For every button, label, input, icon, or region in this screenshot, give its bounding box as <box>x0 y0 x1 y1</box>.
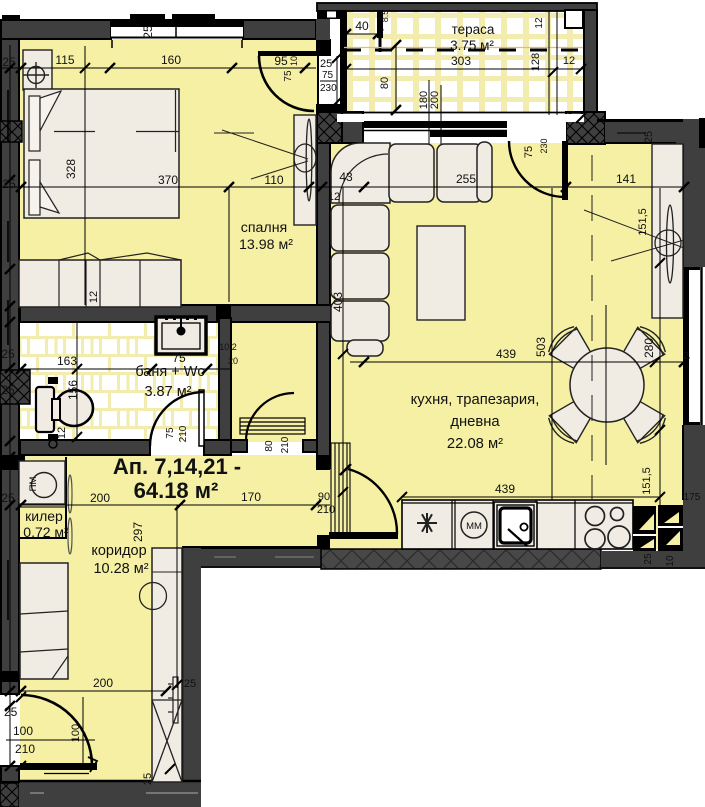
svg-text:110: 110 <box>264 173 283 187</box>
svg-text:503: 503 <box>534 337 548 357</box>
svg-text:175: 175 <box>684 492 701 503</box>
svg-text:3.75 м²: 3.75 м² <box>450 38 494 53</box>
svg-text:10,2: 10,2 <box>219 342 237 352</box>
svg-text:439: 439 <box>496 347 516 361</box>
svg-text:25: 25 <box>643 131 655 143</box>
svg-text:151,5: 151,5 <box>641 467 653 495</box>
svg-text:403: 403 <box>331 292 345 312</box>
svg-text:151,5: 151,5 <box>637 208 649 236</box>
svg-text:280: 280 <box>642 338 656 358</box>
svg-text:коридор: коридор <box>91 543 146 559</box>
svg-text:10: 10 <box>289 56 299 66</box>
svg-text:210: 210 <box>317 504 335 516</box>
svg-text:спалня: спалня <box>241 220 287 236</box>
svg-text:2: 2 <box>683 351 689 362</box>
svg-text:25: 25 <box>2 177 16 191</box>
svg-text:килер: килер <box>25 508 63 524</box>
svg-text:25: 25 <box>320 58 332 70</box>
svg-text:25: 25 <box>1 347 15 361</box>
svg-text:210: 210 <box>280 436 291 453</box>
svg-text:25: 25 <box>2 55 16 69</box>
svg-text:75: 75 <box>322 70 334 81</box>
svg-text:12: 12 <box>328 191 340 203</box>
svg-text:MM: MM <box>466 521 482 532</box>
svg-text:75: 75 <box>283 70 294 82</box>
svg-text:328: 328 <box>64 159 78 179</box>
svg-text:200: 200 <box>429 91 441 109</box>
svg-text:13.98 м²: 13.98 м² <box>239 237 293 253</box>
svg-text:163: 163 <box>57 354 77 368</box>
svg-text:12: 12 <box>56 427 68 439</box>
svg-text:20: 20 <box>228 356 238 366</box>
svg-text:12: 12 <box>563 55 575 67</box>
svg-text:160: 160 <box>161 53 181 67</box>
svg-text:тераса: тераса <box>452 22 495 37</box>
svg-text:25: 25 <box>142 773 154 785</box>
svg-text:ПМ: ПМ <box>28 477 39 492</box>
svg-text:3.87 м²: 3.87 м² <box>144 384 191 400</box>
svg-text:303: 303 <box>451 54 471 68</box>
svg-text:200: 200 <box>93 676 113 690</box>
svg-text:кухня, трапезария,: кухня, трапезария, <box>411 392 540 408</box>
svg-text:297: 297 <box>131 522 145 542</box>
svg-text:10.28 м²: 10.28 м² <box>93 561 148 577</box>
svg-text:75: 75 <box>523 146 535 158</box>
svg-text:0.72 м²: 0.72 м² <box>23 524 69 540</box>
svg-text:80: 80 <box>379 77 391 89</box>
svg-text:40: 40 <box>355 19 369 33</box>
svg-text:25: 25 <box>1 491 15 505</box>
svg-text:141: 141 <box>616 172 636 186</box>
svg-text:75: 75 <box>172 351 186 365</box>
svg-text:156: 156 <box>66 380 80 400</box>
svg-text:25: 25 <box>141 25 155 39</box>
svg-text:8.5: 8.5 <box>380 10 390 23</box>
svg-text:дневна: дневна <box>450 414 500 430</box>
svg-text:100: 100 <box>13 724 33 738</box>
svg-text:баня + Wc: баня + Wc <box>135 364 204 380</box>
svg-text:115: 115 <box>55 53 74 67</box>
svg-text:80: 80 <box>264 440 275 452</box>
svg-text:64.18 м²: 64.18 м² <box>134 478 219 503</box>
svg-text:210: 210 <box>15 742 35 756</box>
svg-text:25: 25 <box>4 705 18 719</box>
svg-text:12: 12 <box>534 17 545 29</box>
svg-text:Ап. 7,14,21 -: Ап. 7,14,21 - <box>113 454 241 479</box>
svg-text:12: 12 <box>88 291 100 303</box>
svg-text:25: 25 <box>643 553 654 565</box>
svg-text:230: 230 <box>539 138 549 153</box>
svg-text:100: 100 <box>70 724 82 742</box>
svg-text:170: 170 <box>241 490 261 504</box>
svg-text:10: 10 <box>665 555 676 567</box>
svg-text:210: 210 <box>178 425 189 442</box>
svg-text:25: 25 <box>184 678 196 690</box>
svg-text:128: 128 <box>530 53 542 71</box>
svg-text:439: 439 <box>495 482 515 496</box>
svg-text:90: 90 <box>318 491 330 503</box>
svg-text:370: 370 <box>158 173 178 187</box>
svg-text:200: 200 <box>90 491 110 505</box>
svg-text:22.08 м²: 22.08 м² <box>447 436 503 452</box>
svg-text:95: 95 <box>274 54 288 68</box>
svg-text:43: 43 <box>339 170 353 184</box>
svg-text:230: 230 <box>320 83 337 94</box>
svg-text:75: 75 <box>165 427 176 439</box>
svg-text:25: 25 <box>1 383 15 397</box>
svg-text:255: 255 <box>456 172 476 186</box>
